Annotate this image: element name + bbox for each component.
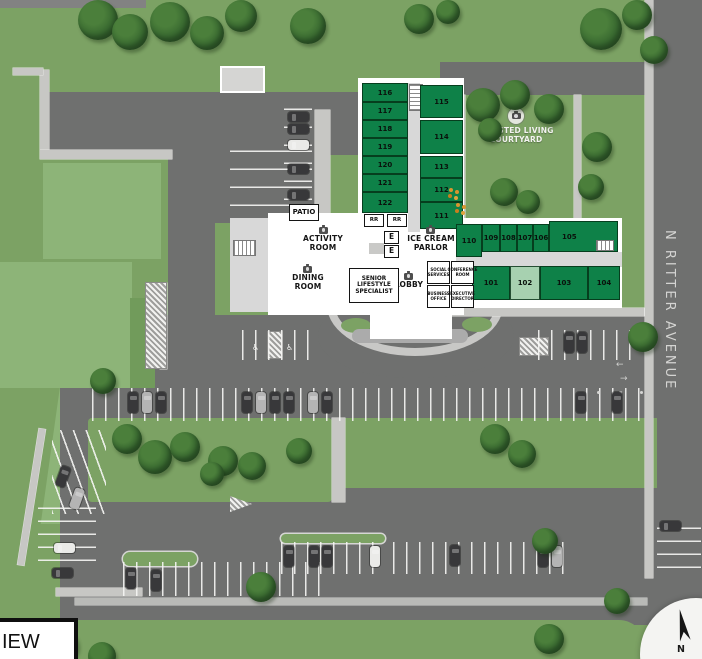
tree xyxy=(604,588,630,614)
room-102[interactable]: 102 xyxy=(510,266,540,300)
senior-lifestyle-specialist-label[interactable]: SENIOR LIFESTYLE SPECIALIST xyxy=(349,268,399,303)
tree xyxy=(170,432,200,462)
tree xyxy=(200,462,224,486)
tree xyxy=(534,94,564,124)
lot-marker xyxy=(640,391,643,394)
lawn-patch xyxy=(43,163,161,259)
room-106[interactable]: 106 xyxy=(533,224,549,252)
accessible-symbol: ♿ xyxy=(286,344,293,352)
tree xyxy=(138,440,172,474)
parked-car xyxy=(242,392,252,413)
picnic-tables xyxy=(456,203,460,207)
parked-car xyxy=(284,392,294,413)
parked-car xyxy=(128,392,138,413)
sidewalk-ritter xyxy=(645,0,653,578)
parked-car xyxy=(288,140,309,150)
tree xyxy=(466,88,500,122)
parked-car xyxy=(322,392,332,413)
room-108[interactable]: 108 xyxy=(500,224,517,252)
camera-icon-courtyard[interactable] xyxy=(508,108,524,124)
camera-icon-dining-room[interactable] xyxy=(303,266,312,273)
camera-icon-lobby[interactable] xyxy=(404,273,413,280)
parked-car xyxy=(288,112,309,122)
office-executive-director: EXECUTIVE DIRECTOR xyxy=(451,285,474,308)
elevator-1: E xyxy=(384,231,399,244)
room-119[interactable]: 119 xyxy=(362,138,408,156)
lot-marker xyxy=(597,391,600,394)
hatched-zone xyxy=(146,283,166,368)
tree xyxy=(580,8,622,50)
parked-car xyxy=(126,568,136,589)
street-name-n-ritter-avenue: N RITTER AVENUE xyxy=(662,230,677,430)
room-113[interactable]: 113 xyxy=(420,156,463,178)
room-112[interactable]: 112 xyxy=(420,178,463,202)
sidewalk xyxy=(40,70,49,156)
tree xyxy=(478,118,502,142)
bush xyxy=(90,368,116,394)
compass-north-label: N xyxy=(677,644,685,655)
tree xyxy=(480,424,510,454)
parked-car xyxy=(288,124,309,134)
dining-room-label[interactable]: DINING ROOM xyxy=(278,274,338,291)
tree xyxy=(225,0,257,32)
room-103[interactable]: 103 xyxy=(540,266,588,300)
tree xyxy=(500,80,530,110)
tree xyxy=(516,190,540,214)
parked-car xyxy=(256,392,266,413)
tree xyxy=(534,624,564,654)
tree xyxy=(582,132,612,162)
stairs-icon xyxy=(596,240,614,251)
room-104[interactable]: 104 xyxy=(588,266,620,300)
parked-car xyxy=(156,392,166,413)
tree xyxy=(150,2,190,42)
road-top-connector xyxy=(440,62,654,95)
room-116[interactable]: 116 xyxy=(362,83,408,102)
tree xyxy=(190,16,224,50)
camera-icon-ice-cream-parlor[interactable] xyxy=(426,227,435,234)
sidewalk-south xyxy=(75,598,647,605)
tree xyxy=(112,14,148,50)
parked-car xyxy=(564,332,574,353)
parked-car xyxy=(270,392,280,413)
legend-panel-partial[interactable]: IEW xyxy=(0,618,78,659)
room-109[interactable]: 109 xyxy=(482,224,500,252)
tree xyxy=(640,36,668,64)
courtyard-wall-east xyxy=(574,95,581,218)
tree xyxy=(286,438,312,464)
parked-car xyxy=(577,332,587,353)
parked-car xyxy=(660,521,681,531)
parked-car xyxy=(450,545,460,566)
sidewalk-east-wing xyxy=(452,308,644,316)
room-118[interactable]: 118 xyxy=(362,120,408,138)
site-map: ♿ ♿ 116 117 118 119 120 xyxy=(0,0,702,659)
elevator-lobby-block xyxy=(369,243,384,254)
parked-car xyxy=(309,546,319,567)
tree xyxy=(508,440,536,468)
parked-car xyxy=(52,568,73,578)
tree xyxy=(490,178,518,206)
parked-car xyxy=(308,392,318,413)
parking-stalls xyxy=(92,388,640,421)
parked-car xyxy=(151,570,161,591)
accessible-symbol: ♿ xyxy=(252,344,259,352)
tree xyxy=(404,4,434,34)
restroom-2: RR xyxy=(387,214,407,227)
tree xyxy=(246,572,276,602)
building-west-gray-block xyxy=(230,218,268,312)
outbuilding xyxy=(220,66,265,93)
room-117[interactable]: 117 xyxy=(362,102,408,120)
patio-label[interactable]: PATIO xyxy=(289,204,319,221)
parked-car xyxy=(370,546,380,567)
room-115[interactable]: 115 xyxy=(420,85,463,118)
parked-car xyxy=(576,392,586,413)
restroom-1: RR xyxy=(364,214,384,227)
elevator-2: E xyxy=(384,245,399,258)
road-top-edge xyxy=(0,0,146,8)
picnic-tables xyxy=(449,188,453,192)
room-120[interactable]: 120 xyxy=(362,156,408,174)
room-114[interactable]: 114 xyxy=(420,120,463,154)
camera-icon-activity-room[interactable] xyxy=(319,227,328,234)
tree xyxy=(622,0,652,30)
parked-car xyxy=(142,392,152,413)
drive-green-island xyxy=(462,317,492,332)
parked-car xyxy=(54,543,75,553)
sidewalk xyxy=(13,68,43,75)
ice-cream-parlor-label[interactable]: ICE CREAM PARLOR xyxy=(401,235,461,252)
building-lobby-entrance xyxy=(370,313,452,339)
parking-stalls xyxy=(538,330,642,360)
tree xyxy=(532,528,558,554)
office-conference-room: CONFERENCE ROOM xyxy=(451,261,474,284)
room-107[interactable]: 107 xyxy=(517,224,533,252)
parked-car xyxy=(288,190,309,200)
parked-car xyxy=(288,164,309,174)
stairs-icon xyxy=(233,240,256,256)
room-122[interactable]: 122 xyxy=(362,192,408,213)
road-arrow-right: → xyxy=(620,375,628,384)
tree xyxy=(436,0,460,24)
parked-car xyxy=(322,546,332,567)
parked-car xyxy=(612,392,622,413)
tree xyxy=(238,452,266,480)
activity-room-label[interactable]: ACTIVITY ROOM xyxy=(293,235,353,252)
legend-panel-text: IEW xyxy=(0,631,40,654)
road-arrow-left: ← xyxy=(616,361,624,370)
sidewalk xyxy=(40,150,172,159)
sidewalk-island xyxy=(332,418,345,502)
tree xyxy=(578,174,604,200)
room-121[interactable]: 121 xyxy=(362,174,408,192)
tree xyxy=(290,8,326,44)
tree xyxy=(112,424,142,454)
office-business-office: BUSINESS OFFICE xyxy=(427,285,450,308)
tree xyxy=(628,322,658,352)
parked-car xyxy=(284,546,294,567)
